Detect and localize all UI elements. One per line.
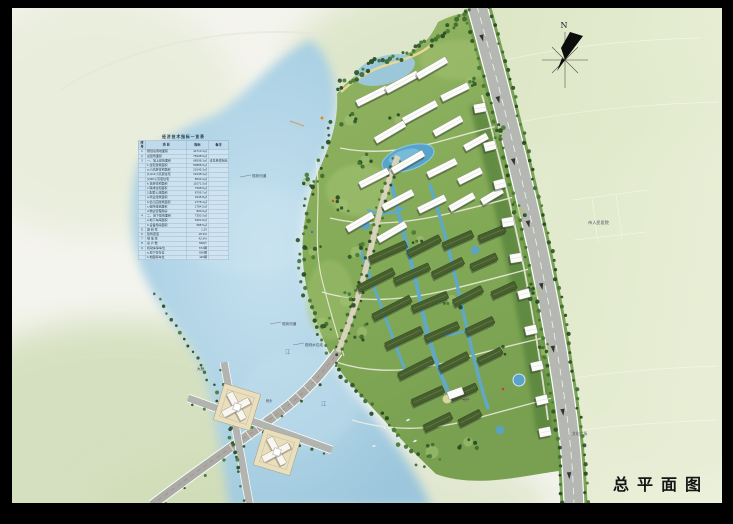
indicator-table-title: 经济技术指标一览表 <box>138 134 229 140</box>
label-hospital: 市人民医院 <box>588 219 610 226</box>
label-river-char-1: 江 <box>285 349 291 356</box>
label-dock: 码头 <box>266 398 273 403</box>
label-plaza: 文化广场 <box>572 431 587 436</box>
framed-plan-image: N 现状河道 现状河道 规划水位线 江 江 大桥 码头 市人民医院 文化广场 会… <box>0 0 733 524</box>
label-channel-upper: 现状河道 <box>252 173 267 178</box>
master-plan-canvas: N 现状河道 现状河道 规划水位线 江 江 大桥 码头 市人民医院 文化广场 会… <box>12 8 722 503</box>
label-waterline: 规划水位线 <box>305 342 323 347</box>
compass-north-label: N <box>561 21 568 30</box>
drawing-title: 总平面图 <box>613 475 709 494</box>
label-bridge: 大桥 <box>197 366 205 371</box>
label-club: 会所 <box>462 397 470 402</box>
indicator-table-panel: 经济技术指标一览表 序号项 目指标备注1规划总用地面积44713.3㎡ 2总建筑… <box>138 134 229 260</box>
drawing-board: N 现状河道 现状河道 规划水位线 江 江 大桥 码头 市人民医院 文化广场 会… <box>12 8 722 503</box>
indicator-table: 序号项 目指标备注1规划总用地面积44713.3㎡ 2总建筑面积75948.6㎡… <box>138 141 229 261</box>
label-channel-lower: 现状河道 <box>282 321 297 326</box>
label-river-char-2: 江 <box>321 401 327 408</box>
